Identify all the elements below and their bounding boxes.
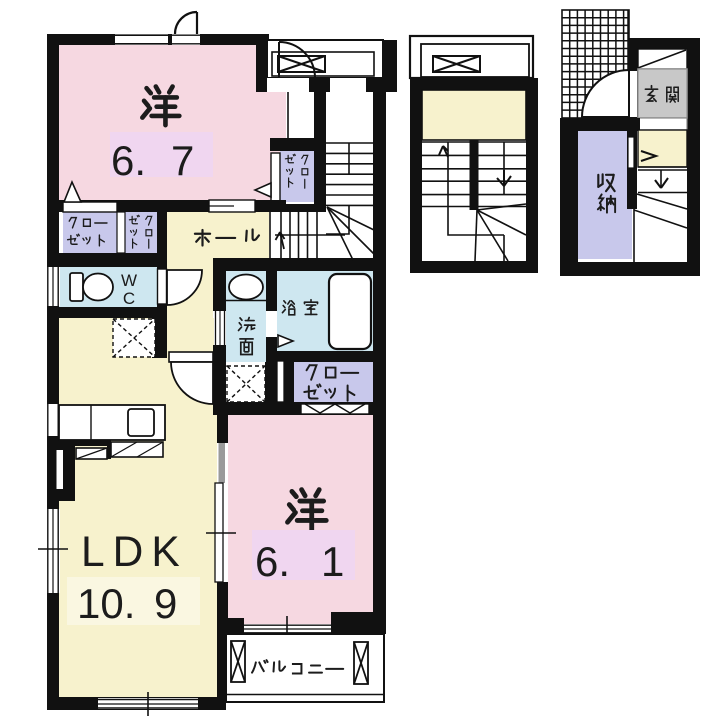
svg-text:9: 9 [154,580,177,627]
svg-text:6.: 6. [111,137,146,184]
svg-text:6.: 6. [255,538,290,585]
svg-text:C: C [123,289,135,308]
svg-text:10.: 10. [77,580,135,627]
svg-text:1: 1 [321,538,344,585]
svg-text:W: W [121,271,137,290]
svg-text:LDK: LDK [81,529,188,576]
svg-text:7: 7 [171,137,194,184]
